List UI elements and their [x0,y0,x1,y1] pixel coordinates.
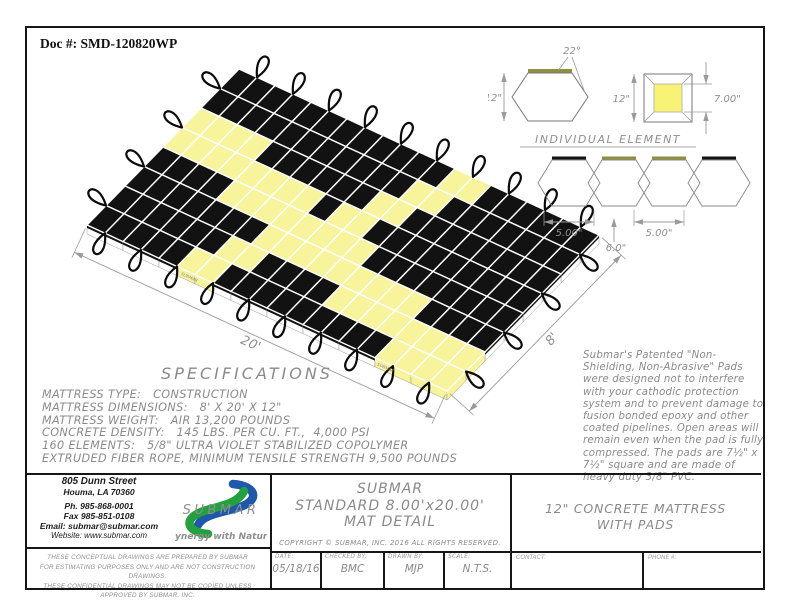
spec-line: MATTRESS DIMENSIONS: 8' X 20' X 12" [42,402,452,415]
field-checked-by: CHECKED BY: BMC [322,553,383,588]
dim-spacing-center: 6.0" [606,243,627,254]
field-label: CONTACT: [512,553,642,561]
dim-arrow [703,112,708,121]
field-contact: CONTACT: [512,553,642,588]
copyright-line: COPYRIGHT © SUBMAR, INC. 2016 ALL RIGHTS… [270,539,510,547]
specifications-block: SPECIFICATIONS MATTRESS TYPE: CONSTRUCTI… [42,364,452,466]
field-date: DATE: 05/18/16 [272,553,320,588]
logo-tagline: Synergy with Nature [175,532,267,542]
submar-logo: SUBMAR Synergy with Nature [175,477,267,545]
rope-loop [164,111,182,127]
rope-loop [202,72,220,88]
pad-top-strip [528,69,572,73]
element-row-dims: 5.00" 5.00" 6.0" [544,210,684,254]
field-drawn-by: DRAWN BY: MJP [385,553,443,588]
company-fax: Fax 985-851-0108 [25,511,173,521]
rope-loop [329,90,341,111]
field-value: BMC [322,563,383,575]
drawing-title-line: MAT DETAIL [270,514,510,531]
element-plan-view: 12" 7.00" [613,62,741,134]
drawing-title: SUBMAR STANDARD 8.00'x20.00' MAT DETAIL [270,481,510,531]
disclaimer-line: THESE CONFIDENTIAL DRAWINGS MAY NOT BE C… [25,582,270,601]
dim-arrow [501,73,506,82]
dim-arrow [703,75,708,84]
dim-extension [450,394,474,415]
dim-arrow [631,113,636,122]
field-value: 05/18/16 [272,563,320,575]
rope-loop [437,139,449,160]
rope-loop [293,73,305,94]
rope-loop [401,123,413,144]
drawing-title-line: STANDARD 8.00'x20.00' [270,498,510,515]
company-email: Email: submar@submar.com [25,521,173,531]
disclaimer-line: FOR ESTIMATING PURPOSES ONLY AND ARE NOT… [25,563,270,582]
pads-note: Submar's Patented "Non-Shielding, Non-Ab… [583,350,765,484]
sheet-description: 12" CONCRETE MATTRESS WITH PADS [510,501,761,533]
rope-loop [126,150,144,166]
element-row-section [538,157,750,207]
dim-spacing-left: 5.00" [556,228,583,239]
company-phone: Ph. 985-868-0001 [25,501,173,511]
rope-loop [88,189,106,205]
disclaimer: THESE CONCEPTUAL DRAWINGS ARE PREPARED B… [25,549,270,601]
spec-line: EXTRUDED FIBER ROPE, MINIMUM TENSILE STR… [42,453,452,466]
field-label: CHECKED BY: [322,553,383,560]
element-detail-title: INDIVIDUAL ELEMENT [535,133,681,146]
field-label: SCALE: [445,553,510,560]
dim-arrow [501,112,506,121]
dim-arrow [634,219,643,224]
field-label: PHONE #: [644,553,761,561]
address-line: Houma, LA 70360 [25,487,173,497]
dim-plan-height: 12" [613,94,630,105]
element-hexagon [588,160,650,206]
pad-face [654,84,682,112]
dim-arrow [585,219,594,224]
field-value: N.T.S. [445,563,510,575]
dim-arrow [544,219,553,224]
spec-line: MATTRESS TYPE: CONSTRUCTION [42,389,452,402]
field-phone: PHONE #: [644,553,761,588]
element-hexagon [538,160,600,206]
dim-arrow [611,218,616,227]
description-line: 12" CONCRETE MATTRESS [510,501,761,517]
dim-side-height: 12" [488,93,502,104]
disclaimer-line: THESE CONCEPTUAL DRAWINGS ARE PREPARED B… [25,553,270,563]
drawing-title-line: SUBMAR [270,481,510,498]
company-address: 805 Dunn Street Houma, LA 70360 Ph. 985-… [25,477,173,542]
field-label: DRAWN BY: [385,553,443,560]
company-website: Website: www.submar.com [25,531,173,541]
address-line: 805 Dunn Street [25,477,173,487]
dim-spacing-right: 5.00" [646,228,673,239]
logo-text: SUBMAR [183,503,260,518]
dim-arrow [631,74,636,83]
title-block: 805 Dunn Street Houma, LA 70360 Ph. 985-… [25,473,761,588]
element-detail-drawing: 12" 22° 12" 7.00" INDIVIDUAL ELEMENT [488,38,768,256]
drawing-sheet: Doc #: SMD-120820WP 20'8'SUBMARSUBMAR 12… [0,0,792,612]
element-side-view: 12" 22° [488,46,588,121]
field-value: MJP [385,563,443,575]
dim-arrow [675,219,684,224]
description-line: WITH PADS [510,517,761,533]
rope-loop [473,156,485,177]
dim-arrow [74,252,83,258]
field-label: DATE: [272,553,320,560]
element-hexagon [638,160,700,206]
dim-pad-size: 7.00" [714,94,741,105]
mat-dimension-label: 20' [238,333,263,355]
field-scale: SCALE: N.T.S. [445,553,510,588]
specifications-title: SPECIFICATIONS [42,364,452,383]
rope-loop [257,56,269,77]
rope-loop [365,106,377,127]
dim-angle: 22° [563,46,581,57]
element-hexagon [688,160,750,206]
